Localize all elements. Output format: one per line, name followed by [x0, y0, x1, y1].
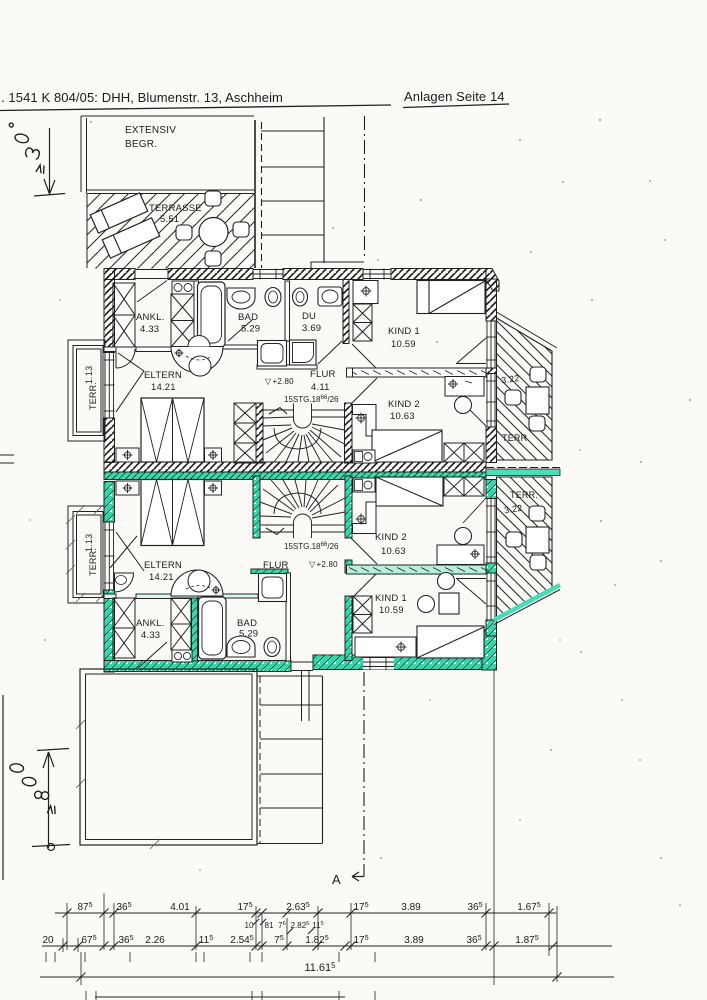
svg-text:5.29: 5.29: [239, 629, 258, 640]
svg-text:BEGR.: BEGR.: [125, 139, 157, 150]
svg-text:KIND 2: KIND 2: [388, 399, 420, 410]
svg-text:15STG.1866/26: 15STG.1866/26: [284, 541, 339, 551]
svg-text:5.29: 5.29: [241, 324, 260, 335]
svg-text:10.59: 10.59: [391, 339, 416, 350]
svg-text:4.33: 4.33: [141, 630, 160, 641]
svg-text:10.63: 10.63: [381, 546, 406, 557]
svg-text:3.89: 3.89: [401, 902, 421, 913]
svg-text:1.13: 1.13: [84, 366, 94, 384]
svg-text:3.89: 3.89: [404, 935, 424, 946]
svg-text:10: 10: [245, 921, 254, 930]
svg-text:. 1541 K 804/05: DHH, Blumenst: . 1541 K 804/05: DHH, Blumenstr. 13, Asc…: [1, 90, 283, 105]
svg-text:TERR.: TERR.: [88, 382, 98, 410]
svg-text:TERR.: TERR.: [510, 490, 538, 500]
svg-text:14.21: 14.21: [149, 572, 174, 583]
svg-text:TERRASSE: TERRASSE: [149, 203, 202, 214]
svg-text:4.11: 4.11: [311, 382, 330, 393]
svg-text:3.69: 3.69: [302, 323, 321, 334]
svg-text:FLUR: FLUR: [310, 369, 336, 380]
svg-text:Anlagen Seite 14: Anlagen Seite 14: [404, 89, 505, 104]
svg-text:10.59: 10.59: [379, 605, 404, 616]
svg-text:TERR.: TERR.: [88, 548, 98, 576]
svg-text:81: 81: [265, 921, 274, 930]
svg-text:A: A: [332, 872, 341, 887]
svg-text:+2.80: +2.80: [317, 560, 339, 569]
svg-text:ANKL.: ANKL.: [136, 312, 164, 323]
svg-text:BAD: BAD: [238, 312, 258, 323]
svg-text:DU: DU: [302, 311, 316, 322]
svg-text:5.51: 5.51: [160, 214, 179, 225]
svg-text:KIND 2: KIND 2: [375, 532, 407, 543]
svg-text:FLUR: FLUR: [263, 560, 289, 571]
svg-text:BAD: BAD: [237, 618, 257, 629]
svg-text:ELTERN: ELTERN: [144, 370, 182, 381]
svg-text:20: 20: [42, 935, 54, 946]
svg-text:▽: ▽: [309, 560, 316, 569]
svg-text:TERR.: TERR.: [502, 433, 530, 443]
svg-text:▽: ▽: [265, 377, 272, 386]
svg-text:4.01: 4.01: [170, 902, 190, 913]
svg-text:14.21: 14.21: [151, 382, 176, 393]
svg-text:15STG.1866/26: 15STG.1866/26: [284, 394, 339, 404]
svg-text:ANKL.: ANKL.: [136, 618, 164, 629]
svg-text:2.26: 2.26: [145, 935, 165, 946]
svg-text:+2.80: +2.80: [273, 377, 295, 386]
svg-text:ELTERN: ELTERN: [144, 560, 182, 571]
svg-text:10.63: 10.63: [390, 411, 415, 422]
svg-text:4.33: 4.33: [140, 324, 159, 335]
svg-text:KIND 1: KIND 1: [388, 326, 420, 337]
svg-text:KIND 1: KIND 1: [375, 593, 407, 604]
svg-text:EXTENSIV: EXTENSIV: [125, 125, 176, 136]
